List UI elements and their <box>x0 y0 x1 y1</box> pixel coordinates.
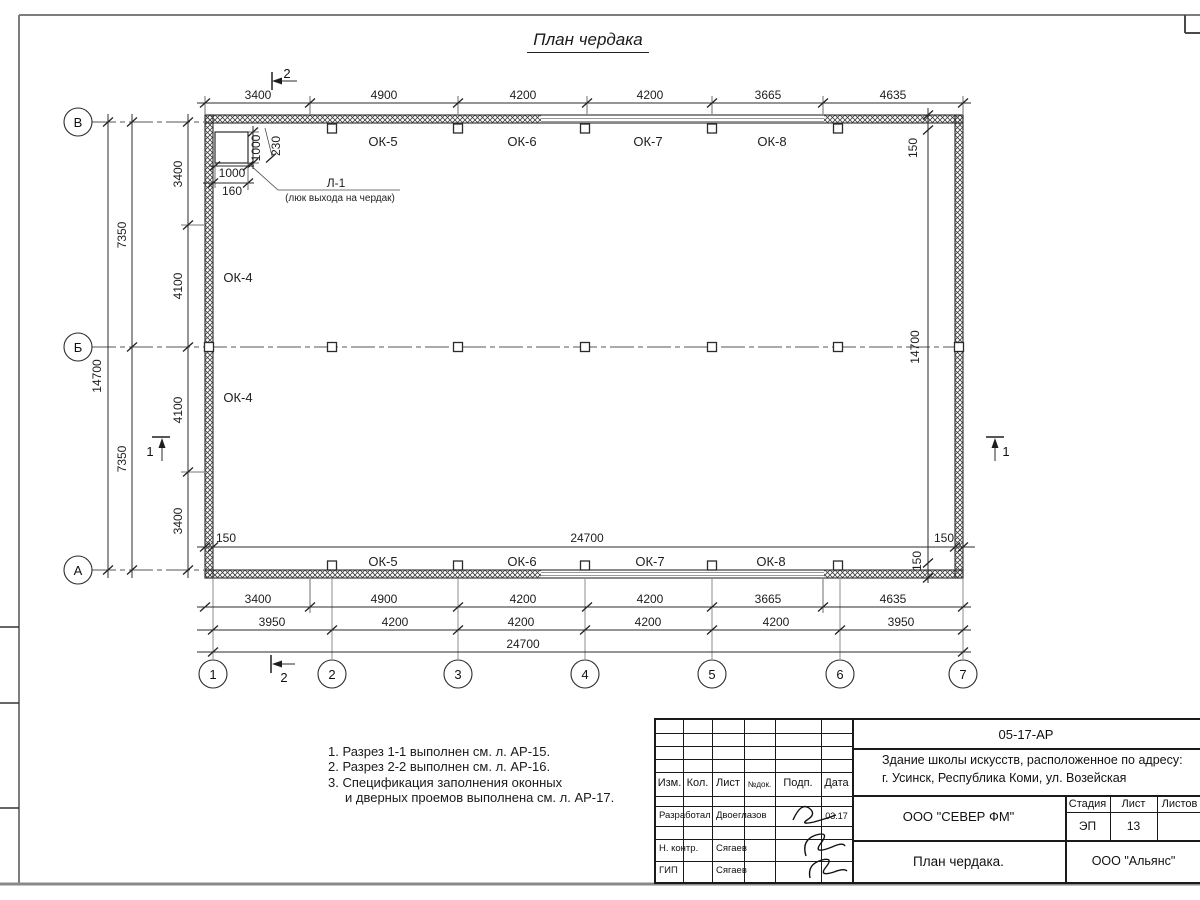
notes-block: 1. Разрез 1-1 выполнен см. л. АР-15. 2. … <box>328 744 614 806</box>
dim-label: 4100 <box>171 272 185 299</box>
window-label: ОК-5 <box>368 554 397 569</box>
title-block: Изм. Кол. Лист №док. Подп. Дата Разработ… <box>654 718 1200 884</box>
dim-label: 3400 <box>245 592 272 606</box>
section-label: 1 <box>1002 444 1009 459</box>
window-label: ОК-8 <box>757 134 786 149</box>
dim-label: 7350 <box>115 221 129 248</box>
dim-label: 4900 <box>371 88 398 102</box>
window-label: ОК-7 <box>633 134 662 149</box>
window-label: ОК-5 <box>368 134 397 149</box>
dim-label: 4200 <box>635 615 662 629</box>
dim-label: 4200 <box>510 592 537 606</box>
dim-label: 3950 <box>888 615 915 629</box>
section-label: 1 <box>146 444 153 459</box>
dim-label: 7350 <box>115 445 129 472</box>
axis-bubble: А <box>74 563 83 578</box>
page-title: План чердака <box>470 30 706 53</box>
dim-label: 3400 <box>171 160 185 187</box>
dim-label: 4200 <box>637 592 664 606</box>
dim-label: 3665 <box>755 592 782 606</box>
dim-label: 14700 <box>90 359 104 393</box>
note-line: 2. Разрез 2-2 выполнен см. л. АР-16. <box>328 759 614 774</box>
dim-label: 4200 <box>510 88 537 102</box>
dim-label: 4900 <box>371 592 398 606</box>
right-dimension-chain: 14700 150 150 <box>906 108 933 583</box>
dim-label: 150 <box>910 551 924 571</box>
window-label: ОК-4 <box>223 390 252 405</box>
top-dimension-chain: 3400 4900 4200 4200 3665 4635 <box>197 88 971 114</box>
window-label: ОК-7 <box>635 554 664 569</box>
note-line: и дверных проемов выполнена см. л. АР-17… <box>328 790 614 805</box>
window-label: ОК-6 <box>507 554 536 569</box>
window-label: ОК-4 <box>223 270 252 285</box>
interior-width-dimension: 150 24700 150 <box>197 531 975 552</box>
dim-label: 14700 <box>908 330 922 364</box>
signature-ncontr <box>805 834 845 856</box>
signature-gip <box>810 859 848 878</box>
dim-label: 3400 <box>245 88 272 102</box>
drawing-sheet: 3400 4900 4200 4200 3665 4635 3400 4100 … <box>0 0 1200 900</box>
axis-bubble: Б <box>74 340 83 355</box>
axis-bubble: 1 <box>209 667 216 682</box>
axis-bubble: 3 <box>454 667 461 682</box>
dim-label: 4635 <box>880 592 907 606</box>
signature-razrabotal <box>793 807 836 824</box>
left-dimension-chains: 3400 4100 4100 3400 7350 7350 14700 <box>90 114 204 578</box>
section-label: 2 <box>280 670 287 685</box>
bottom-dimension-chains: 3400 4900 4200 4200 3665 4635 3950 4200 … <box>197 579 971 657</box>
dim-label: 4100 <box>171 396 185 423</box>
axis-bubble: 2 <box>328 667 335 682</box>
dim-label: 1000 <box>219 166 246 180</box>
dim-label: 150 <box>934 531 954 545</box>
dim-label: 4200 <box>382 615 409 629</box>
dim-label: 150 <box>906 138 920 158</box>
dim-label: 3950 <box>259 615 286 629</box>
signatures <box>656 720 1200 882</box>
dim-label: 3400 <box>171 507 185 534</box>
hatch-caption: (люк выхода на чердак) <box>285 193 395 204</box>
dim-label: 4200 <box>508 615 535 629</box>
window-label: ОК-6 <box>507 134 536 149</box>
dim-label: 1000 <box>249 134 263 161</box>
dim-label: 4200 <box>637 88 664 102</box>
hatch-label: Л-1 <box>327 176 346 190</box>
note-line: 3. Спецификация заполнения оконных <box>328 775 614 790</box>
section-label: 2 <box>283 66 290 81</box>
axis-bubble: 6 <box>836 667 843 682</box>
dim-label: 150 <box>216 531 236 545</box>
dim-label: 4200 <box>763 615 790 629</box>
axis-bubble: 4 <box>581 667 588 682</box>
axis-bubble: В <box>74 115 83 130</box>
axis-bubble: 5 <box>708 667 715 682</box>
note-line: 1. Разрез 1-1 выполнен см. л. АР-15. <box>328 744 614 759</box>
dim-label: 4635 <box>880 88 907 102</box>
dim-label: 3665 <box>755 88 782 102</box>
dim-label: 230 <box>269 136 283 156</box>
dim-label: 160 <box>222 184 242 198</box>
dim-label: 24700 <box>506 637 540 651</box>
dim-label: 24700 <box>570 531 604 545</box>
axis-bubble: 7 <box>959 667 966 682</box>
window-label: ОК-8 <box>756 554 785 569</box>
